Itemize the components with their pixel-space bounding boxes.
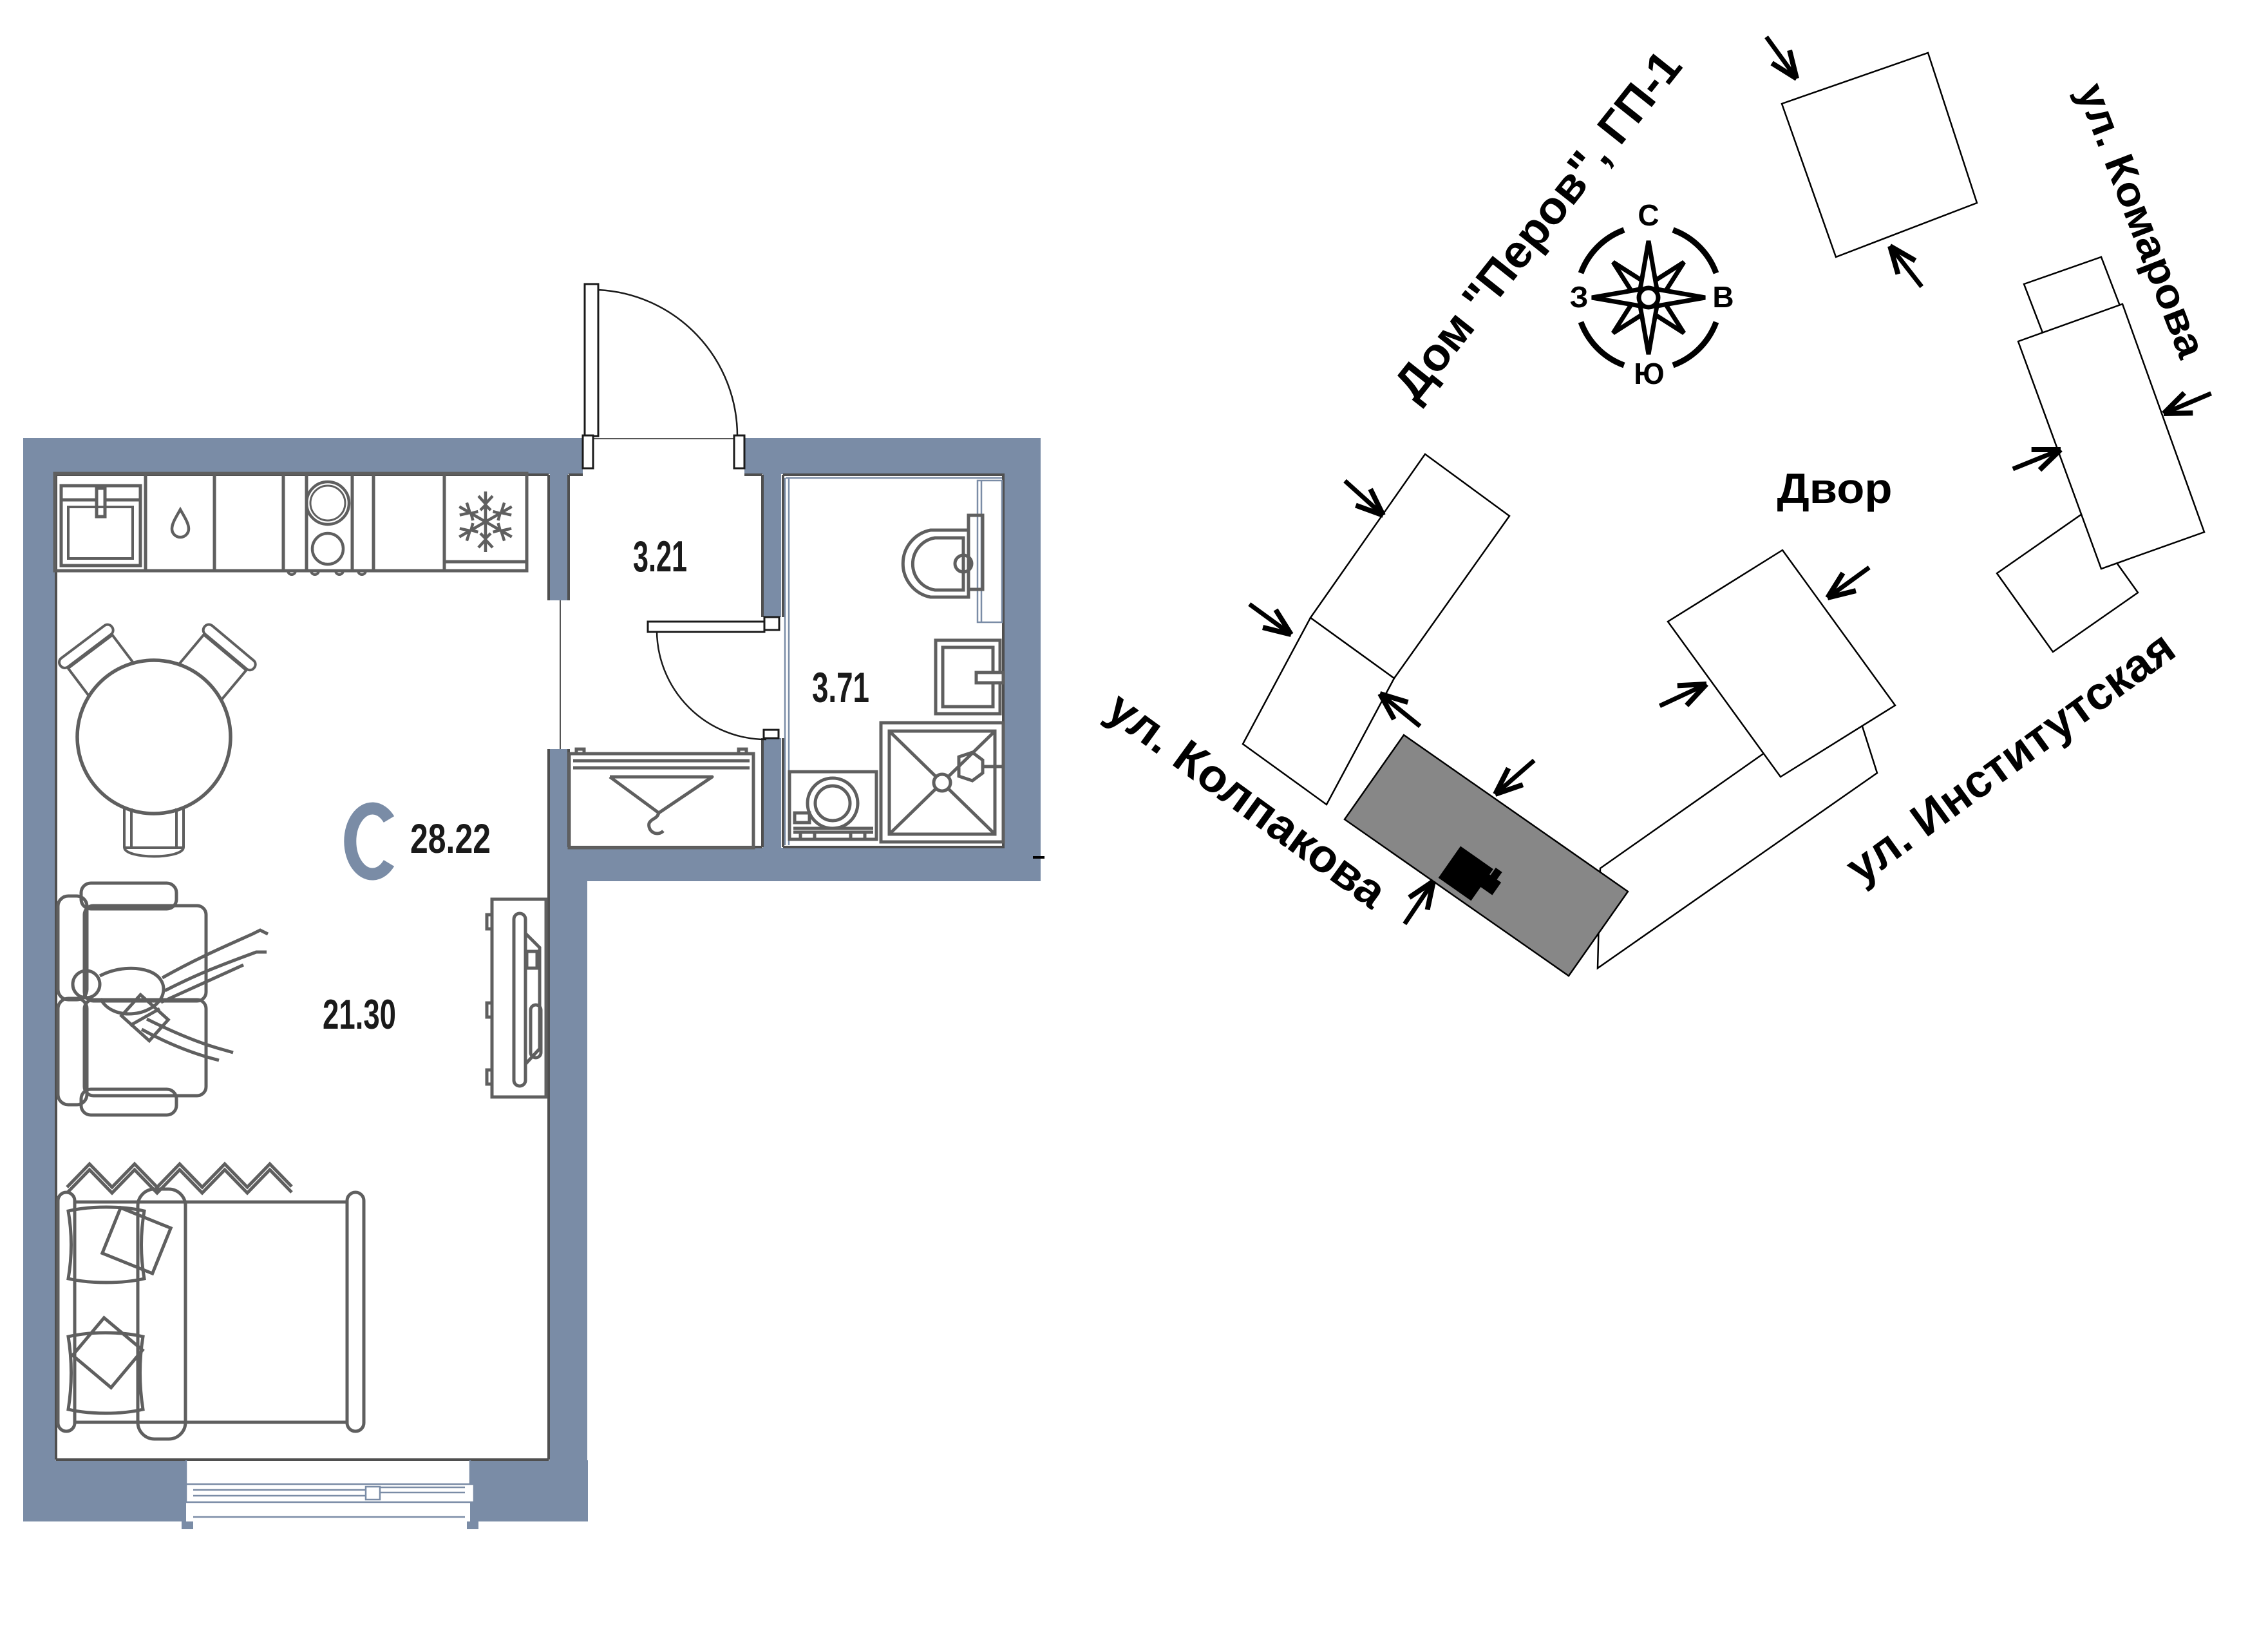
svg-text:21.30: 21.30 — [323, 991, 396, 1038]
svg-text:Двор: Двор — [1777, 464, 1893, 512]
svg-text:3.71: 3.71 — [812, 663, 869, 711]
svg-text:С: С — [1638, 198, 1659, 232]
svg-text:ул. Институтская: ул. Институтская — [1837, 621, 2185, 893]
svg-text:3.21: 3.21 — [633, 532, 687, 581]
svg-text:Ю: Ю — [1634, 357, 1664, 390]
svg-text:28.22: 28.22 — [410, 815, 491, 862]
svg-text:З: З — [1570, 280, 1589, 314]
svg-text:В: В — [1712, 280, 1734, 314]
